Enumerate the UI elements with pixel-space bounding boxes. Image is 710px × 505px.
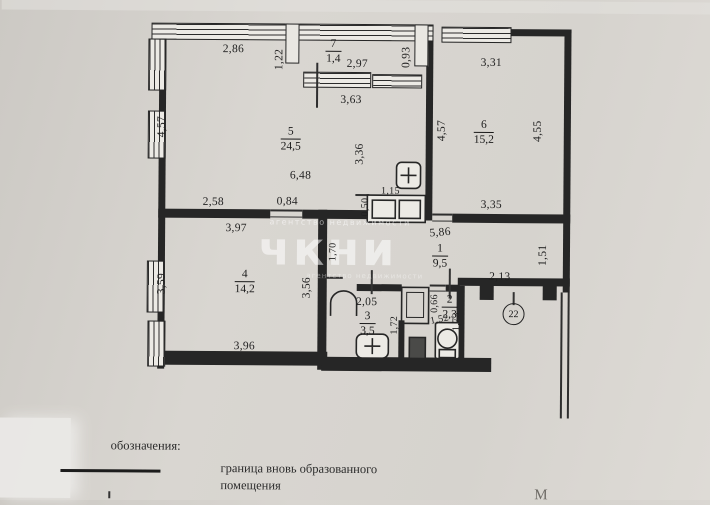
dimension-label: 1,22 [273, 49, 285, 70]
dimension-label: 3,35 [481, 199, 502, 211]
floor-plan: 22 агентство недвижимости чкни агентство… [2, 0, 710, 2]
room-number-area-label: 615,2 [474, 119, 494, 147]
room-number-area-label: 414,2 [235, 268, 255, 296]
dimension-label: 0,66 [429, 294, 440, 313]
dimension-label: 4,57 [156, 116, 168, 137]
room-number-area-label: 71,4 [325, 38, 341, 66]
dimension-label: 3,36 [354, 143, 366, 164]
room-number-area-label: 22,3 [442, 294, 458, 322]
dimension-label: 3,63 [340, 94, 361, 106]
dimension-label: 2,86 [223, 43, 244, 55]
cut-off-page-letter: М [534, 487, 547, 504]
dimension-label: 2,58 [203, 196, 224, 208]
legend-title: обозначения: [111, 438, 181, 453]
dimension-label: 2,13 [489, 271, 510, 283]
dimension-label: 3,59 [156, 273, 168, 294]
dimension-label: 2,97 [347, 58, 368, 70]
dimension-label: 2,05 [356, 296, 377, 308]
scanned-floor-plan-sheet: 22 агентство недвижимости чкни агентство… [0, 0, 710, 502]
dimension-label: 0,50 [360, 198, 371, 217]
dimension-label: 1,51 [537, 245, 549, 266]
legend-item-label: граница вновь образованного [220, 461, 377, 477]
dimension-label: 3,31 [481, 57, 502, 69]
dimension-label: 1,15 [381, 186, 400, 197]
dimension-label: 1,70 [327, 242, 338, 261]
dimension-label: 0,84 [277, 195, 298, 207]
room-number-area-label: 524,5 [281, 125, 301, 153]
dimension-label: 4,57 [436, 120, 448, 141]
dimension-label: 3,96 [234, 340, 255, 352]
dimension-label: 4,55 [532, 121, 544, 142]
vent-shaft-inner [407, 292, 424, 317]
dimension-label: 6,48 [290, 170, 311, 182]
apartment-number-badge: 22 [502, 303, 524, 325]
duct-icon [409, 337, 425, 358]
room-number-area-label: 33,5 [360, 310, 376, 338]
dimension-label: 3,97 [225, 222, 246, 234]
dimension-label: 1,72 [389, 316, 400, 335]
legend-item-label: помещения [220, 478, 281, 493]
door-swing-arc [331, 291, 357, 316]
dimension-label: 3,56 [301, 277, 313, 298]
room-number-area-label: 19,5 [432, 243, 448, 271]
dimension-label: 0,93 [400, 47, 412, 68]
dimension-label: 5,86 [429, 226, 451, 240]
